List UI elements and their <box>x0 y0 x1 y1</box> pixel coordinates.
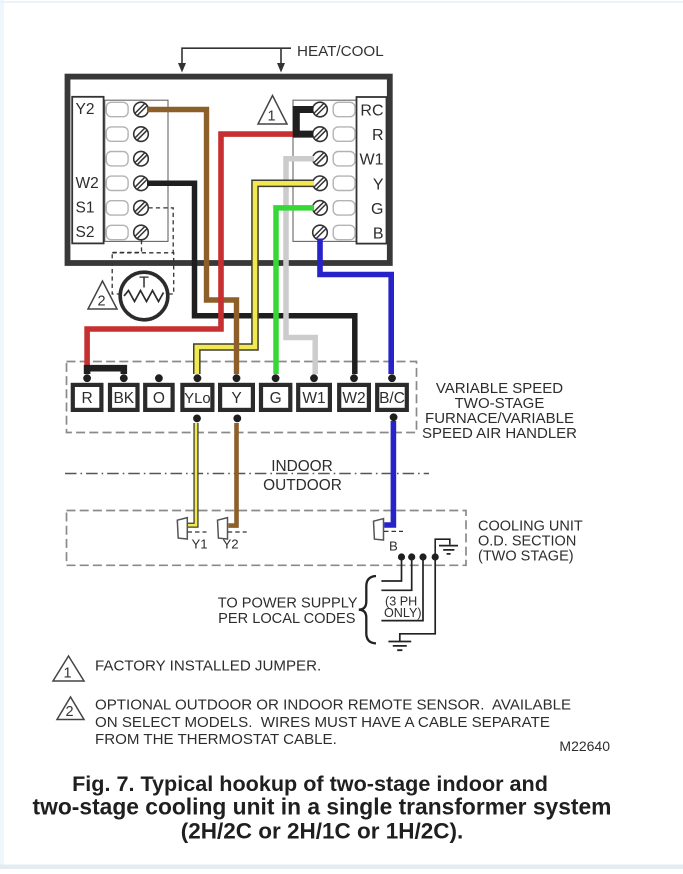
svg-text:M22640: M22640 <box>559 738 610 754</box>
svg-text:ON SELECT MODELS. WIRES MUST: ON SELECT MODELS. WIRES MUST HAVE A CABL… <box>95 714 550 731</box>
svg-text:ONLY): ONLY) <box>384 606 422 620</box>
svg-text:O: O <box>153 390 165 407</box>
svg-text:Y: Y <box>231 390 241 407</box>
svg-text:Y: Y <box>373 176 384 193</box>
svg-text:SPEED AIR HANDLER: SPEED AIR HANDLER <box>422 425 577 442</box>
svg-text:INDOOR: INDOOR <box>271 458 333 475</box>
svg-text:2: 2 <box>65 704 73 720</box>
svg-text:W1: W1 <box>360 152 384 169</box>
svg-text:Y1: Y1 <box>192 537 208 552</box>
svg-text:two-stage cooling unit in a si: two-stage cooling unit in a single trans… <box>33 794 612 820</box>
svg-text:G: G <box>371 201 383 218</box>
svg-text:B: B <box>389 539 398 554</box>
svg-text:W2: W2 <box>76 175 99 192</box>
svg-text:Y2: Y2 <box>76 101 95 118</box>
svg-text:B: B <box>373 226 384 243</box>
svg-text:OUTDOOR: OUTDOOR <box>263 477 342 494</box>
svg-text:Y2: Y2 <box>223 537 239 552</box>
svg-text:S2: S2 <box>76 224 95 241</box>
svg-text:R: R <box>81 390 92 407</box>
svg-text:S1: S1 <box>76 199 95 216</box>
svg-text:FACTORY INSTALLED JUMPER.: FACTORY INSTALLED JUMPER. <box>95 657 321 674</box>
svg-text:Fig. 7. Typical hookup of two-: Fig. 7. Typical hookup of two-stage indo… <box>72 771 548 796</box>
svg-text:PER LOCAL CODES: PER LOCAL CODES <box>218 611 356 627</box>
svg-text:OPTIONAL OUTDOOR OR INDOOR REM: OPTIONAL OUTDOOR OR INDOOR REMOTE SENSOR… <box>95 697 571 714</box>
svg-text:B/C: B/C <box>379 390 405 407</box>
svg-text:YLo: YLo <box>184 391 210 407</box>
svg-text:(2H/2C or 2H/1C or 1H/2C).: (2H/2C or 2H/1C or 1H/2C). <box>181 818 464 843</box>
svg-text:O.D. SECTION: O.D. SECTION <box>478 534 576 550</box>
svg-text:G: G <box>270 390 282 407</box>
svg-text:2: 2 <box>97 294 105 310</box>
svg-text:(TWO STAGE): (TWO STAGE) <box>478 549 574 565</box>
svg-text:1: 1 <box>267 109 275 125</box>
svg-text:RC: RC <box>360 103 383 120</box>
svg-text:HEAT/COOL: HEAT/COOL <box>297 43 384 60</box>
svg-text:R: R <box>372 127 384 144</box>
svg-text:W2: W2 <box>342 390 365 407</box>
svg-text:COOLING UNIT: COOLING UNIT <box>478 519 583 535</box>
svg-text:W1: W1 <box>302 390 325 407</box>
svg-text:FROM THE THERMOSTAT CABLE.: FROM THE THERMOSTAT CABLE. <box>95 731 337 748</box>
svg-text:BK: BK <box>113 390 134 407</box>
svg-text:TO POWER SUPPLY: TO POWER SUPPLY <box>218 595 358 611</box>
svg-text:1: 1 <box>63 666 71 682</box>
